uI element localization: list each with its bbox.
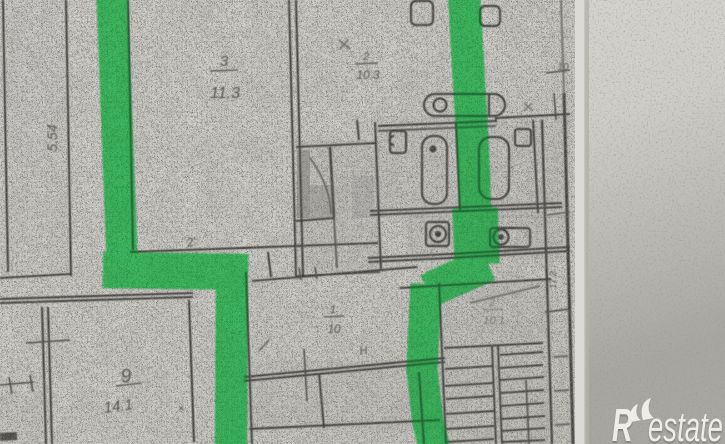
svg-text:R: R [612, 400, 633, 444]
svg-text:estate: estate [648, 403, 723, 444]
